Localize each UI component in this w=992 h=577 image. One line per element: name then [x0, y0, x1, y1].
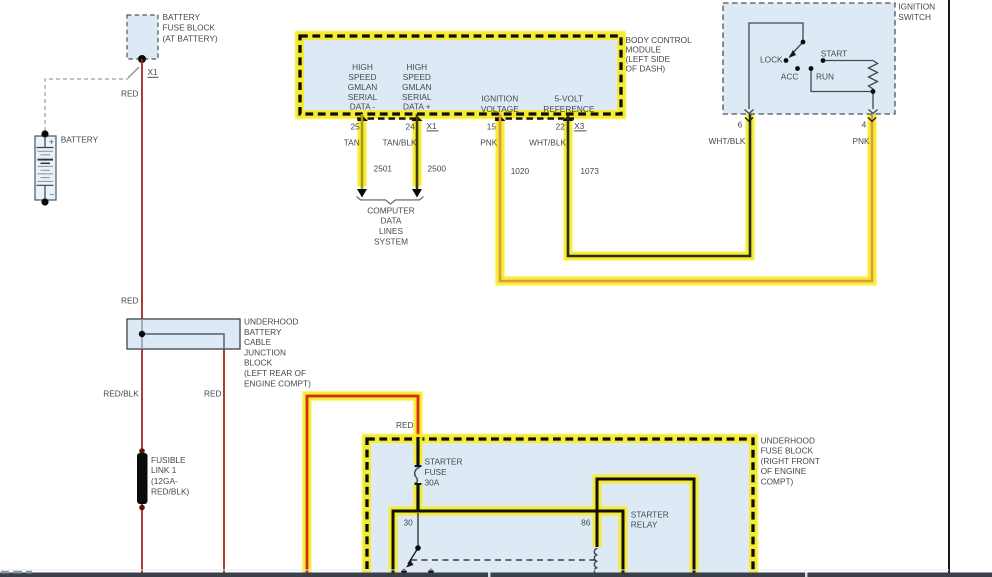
- svg-text:−: −: [50, 190, 55, 200]
- svg-text:PNK: PNK: [480, 138, 498, 148]
- svg-text:RED: RED: [121, 88, 139, 98]
- svg-text:UNDERHOOD: UNDERHOOD: [761, 435, 815, 445]
- svg-text:1073: 1073: [580, 166, 599, 176]
- svg-text:X1: X1: [148, 67, 159, 77]
- svg-text:FUSIBLE: FUSIBLE: [151, 455, 186, 465]
- svg-text:FUSE BLOCK: FUSE BLOCK: [163, 23, 216, 33]
- svg-text:WHT/BLK: WHT/BLK: [709, 136, 746, 146]
- svg-text:IGNITION: IGNITION: [898, 2, 935, 12]
- svg-text:TAN/BLK: TAN/BLK: [383, 138, 417, 148]
- svg-text:+: +: [49, 137, 54, 147]
- svg-text:(12GA-: (12GA-: [151, 476, 178, 486]
- svg-text:LOCK: LOCK: [760, 55, 783, 65]
- svg-text:SERIAL: SERIAL: [402, 92, 432, 102]
- svg-text:SPEED: SPEED: [403, 72, 431, 82]
- svg-text:1020: 1020: [511, 166, 530, 176]
- svg-text:TAN: TAN: [344, 138, 360, 148]
- svg-text:RED: RED: [396, 420, 414, 430]
- svg-text:RED: RED: [204, 389, 222, 399]
- svg-text:GMLAN: GMLAN: [402, 82, 432, 92]
- svg-text:RED/BLK: RED/BLK: [103, 389, 139, 399]
- svg-text:BATTERY: BATTERY: [61, 135, 99, 145]
- svg-text:86: 86: [581, 517, 591, 527]
- svg-text:ENGINE COMPT): ENGINE COMPT): [244, 378, 311, 388]
- svg-text:2501: 2501: [374, 164, 393, 174]
- svg-text:CABLE: CABLE: [244, 337, 272, 347]
- svg-text:UNDERHOOD: UNDERHOOD: [244, 317, 298, 327]
- svg-text:OF DASH): OF DASH): [626, 63, 666, 73]
- svg-text:MODULE: MODULE: [626, 45, 662, 55]
- svg-text:STARTER: STARTER: [425, 457, 463, 467]
- svg-text:LINES: LINES: [379, 226, 403, 236]
- svg-text:COMPT): COMPT): [761, 477, 794, 487]
- svg-text:JUNCTION: JUNCTION: [244, 347, 286, 357]
- svg-text:HIGH: HIGH: [352, 62, 373, 72]
- svg-text:COMPUTER: COMPUTER: [367, 205, 414, 215]
- svg-text:OF ENGINE: OF ENGINE: [761, 466, 807, 476]
- svg-text:22: 22: [556, 121, 566, 131]
- svg-text:5-VOLT: 5-VOLT: [555, 94, 583, 104]
- svg-text:START: START: [821, 48, 847, 58]
- svg-text:X1: X1: [427, 121, 438, 131]
- svg-text:BODY CONTROL: BODY CONTROL: [626, 35, 693, 45]
- svg-text:24: 24: [405, 121, 415, 131]
- svg-text:FUSE: FUSE: [425, 467, 448, 477]
- svg-text:SERIAL: SERIAL: [348, 92, 378, 102]
- svg-text:25: 25: [350, 121, 360, 131]
- svg-text:4: 4: [862, 120, 867, 130]
- svg-text:BATTERY: BATTERY: [244, 327, 282, 337]
- svg-text:DATA -: DATA -: [350, 102, 376, 112]
- svg-text:RUN: RUN: [816, 71, 834, 81]
- svg-text:VOLTAGE: VOLTAGE: [481, 104, 519, 114]
- svg-text:SPEED: SPEED: [348, 72, 376, 82]
- svg-text:30A: 30A: [425, 478, 440, 488]
- svg-text:HIGH: HIGH: [406, 62, 427, 72]
- svg-text:DATA +: DATA +: [403, 102, 431, 112]
- svg-text:SYSTEM: SYSTEM: [374, 236, 408, 246]
- svg-text:(AT BATTERY): (AT BATTERY): [163, 33, 218, 43]
- svg-text:6: 6: [738, 120, 743, 130]
- svg-text:STARTER: STARTER: [631, 509, 669, 519]
- svg-text:RELAY: RELAY: [631, 520, 658, 530]
- svg-text:PNK: PNK: [852, 136, 870, 146]
- svg-text:X3: X3: [574, 121, 585, 131]
- svg-text:(RIGHT FRONT: (RIGHT FRONT: [761, 456, 820, 466]
- svg-text:BATTERY: BATTERY: [163, 12, 201, 22]
- svg-text:30: 30: [403, 517, 413, 527]
- svg-text:IGNITION: IGNITION: [481, 94, 518, 104]
- svg-text:LINK 1: LINK 1: [151, 465, 177, 475]
- svg-text:DATA: DATA: [381, 216, 402, 226]
- svg-text:ACC: ACC: [781, 71, 799, 81]
- svg-text:WHT/BLK: WHT/BLK: [529, 138, 566, 148]
- svg-text:15: 15: [487, 121, 497, 131]
- svg-text:FUSE BLOCK: FUSE BLOCK: [761, 446, 814, 456]
- svg-text:RED: RED: [121, 296, 139, 306]
- svg-text:GMLAN: GMLAN: [348, 82, 378, 92]
- svg-text:2500: 2500: [428, 164, 447, 174]
- svg-text:RED/BLK): RED/BLK): [151, 486, 190, 496]
- svg-text:REFERENCE: REFERENCE: [543, 104, 595, 114]
- svg-text:SWITCH: SWITCH: [898, 12, 931, 22]
- svg-text:(LEFT REAR OF: (LEFT REAR OF: [244, 368, 306, 378]
- svg-text:BLOCK: BLOCK: [244, 358, 273, 368]
